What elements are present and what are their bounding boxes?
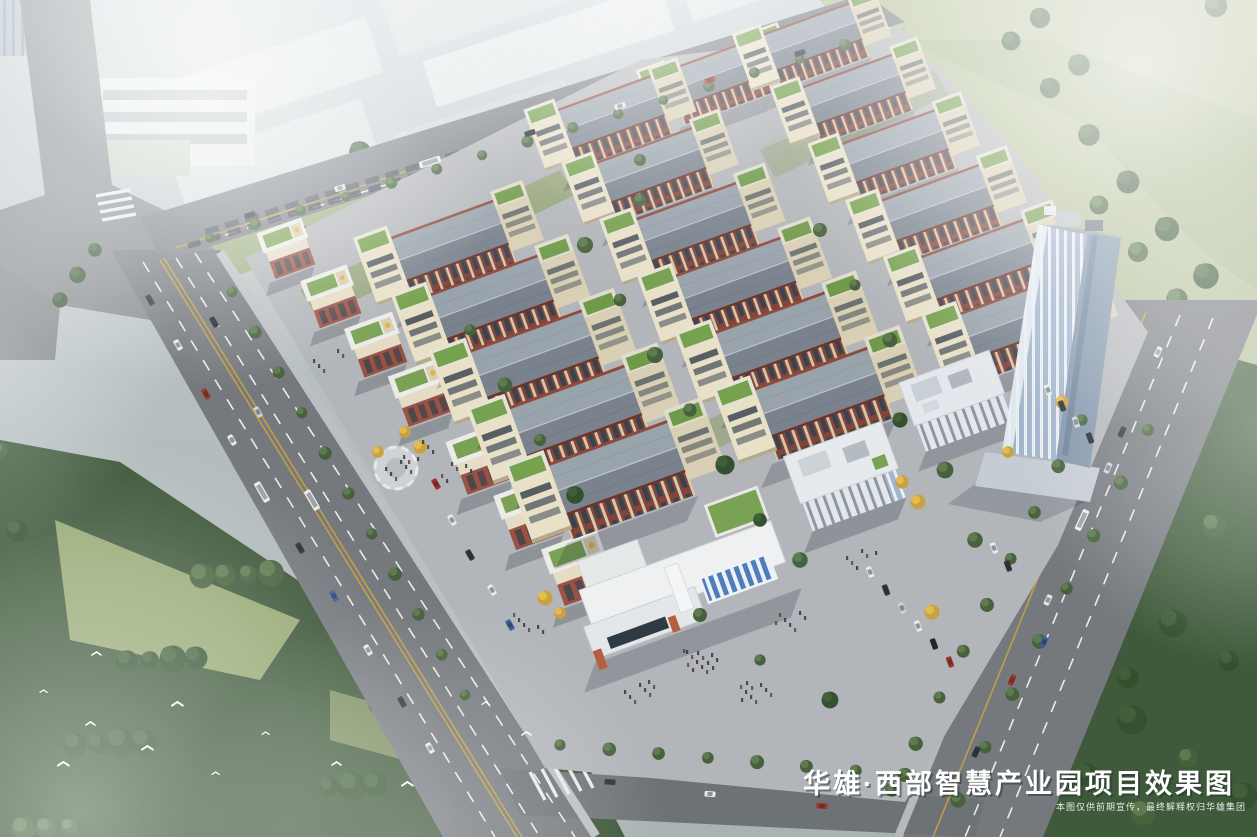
disclaimer-text: 本图仅供前期宣传，最终解释权归华雄集团 bbox=[1056, 801, 1246, 812]
rendering-canvas: 华雄·西部智慧产业园项目效果图 华雄·西部智慧产业园项目效果图 本图仅供前期宣传… bbox=[0, 0, 1257, 837]
project-title: 华雄·西部智慧产业园项目效果图 bbox=[803, 768, 1235, 799]
aerial-scene: 华雄·西部智慧产业园项目效果图 华雄·西部智慧产业园项目效果图 本图仅供前期宣传… bbox=[0, 0, 1257, 837]
